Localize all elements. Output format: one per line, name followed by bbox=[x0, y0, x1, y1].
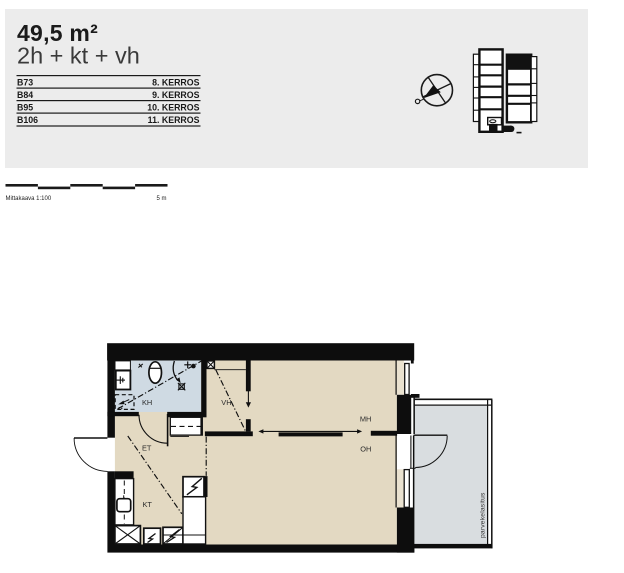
svg-text:11. KERROS: 11. KERROS bbox=[148, 115, 200, 125]
svg-text:10. KERROS: 10. KERROS bbox=[147, 102, 199, 112]
svg-text:2h + kt + vh: 2h + kt + vh bbox=[17, 43, 140, 69]
svg-text:KH: KH bbox=[142, 398, 152, 407]
svg-text:B106: B106 bbox=[17, 115, 38, 125]
svg-text:OH: OH bbox=[360, 444, 371, 453]
svg-text:B95: B95 bbox=[17, 102, 33, 112]
svg-text:B84: B84 bbox=[17, 90, 33, 100]
svg-text:VH: VH bbox=[221, 398, 231, 407]
svg-text:ET: ET bbox=[142, 444, 152, 453]
svg-text:8. KERROS: 8. KERROS bbox=[152, 77, 200, 87]
svg-text:MH: MH bbox=[360, 415, 372, 424]
svg-text:KT: KT bbox=[143, 500, 153, 509]
svg-text:parvekelasitus: parvekelasitus bbox=[480, 492, 487, 538]
svg-text:9. KERROS: 9. KERROS bbox=[152, 90, 200, 100]
svg-text:5 m: 5 m bbox=[156, 196, 166, 202]
svg-text:B73: B73 bbox=[17, 77, 33, 87]
svg-text:Mittakaava 1:100: Mittakaava 1:100 bbox=[6, 196, 52, 202]
